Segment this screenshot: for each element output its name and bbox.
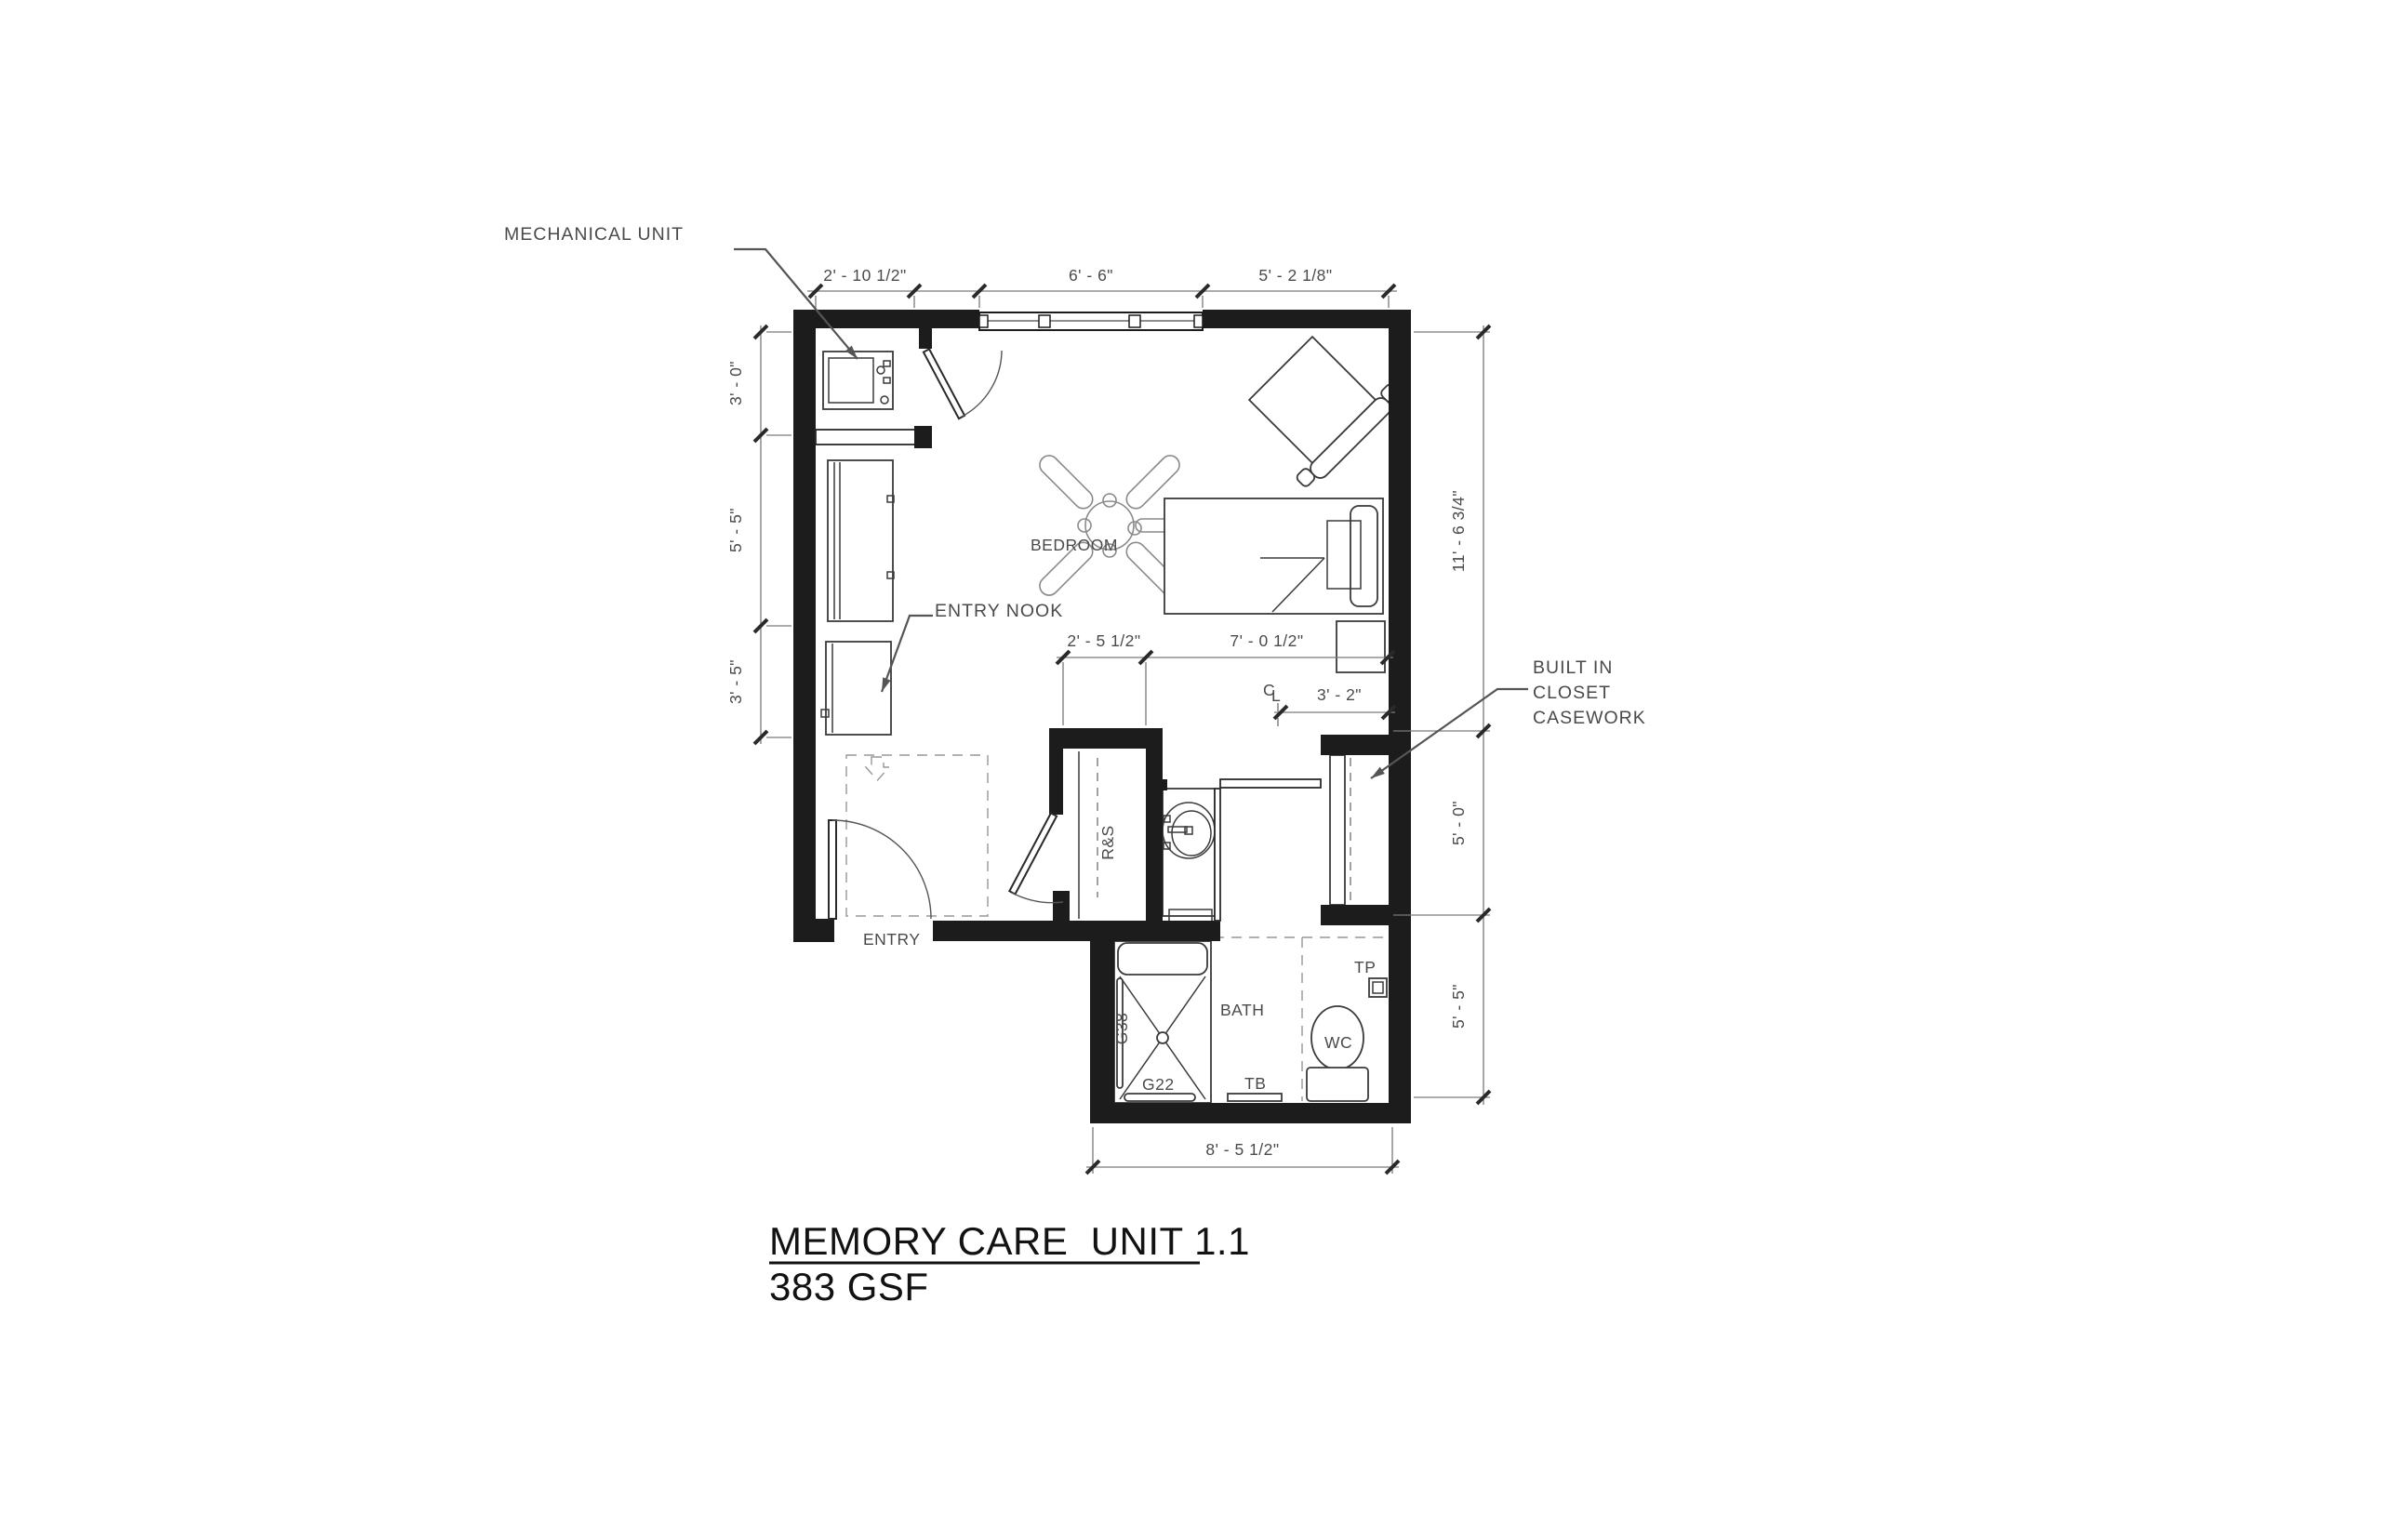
sheet-subtitle: 383 GSF: [769, 1265, 929, 1308]
built-in-closet-label-2: CLOSET: [1533, 683, 1611, 703]
mechanical-unit-box: [823, 352, 893, 409]
dim-bottom: 8' - 5 1/2": [1086, 1127, 1399, 1174]
built-in-closet-casework: [1220, 755, 1350, 905]
wall-vanity-right: [1215, 789, 1220, 921]
down-arrow-icon: [866, 757, 889, 780]
rod-shelf-label: R&S: [1098, 825, 1117, 859]
bedroom-label: BEDROOM: [1031, 536, 1118, 554]
wall-right: [1389, 310, 1411, 1123]
dim-closet-width: 2' - 5 1/2": [1067, 631, 1140, 650]
window-mullion: [1129, 315, 1140, 327]
closet-stub-top: [1321, 735, 1389, 755]
dim-top-window: 6' - 6": [1069, 266, 1113, 285]
leader-arrowhead: [1371, 767, 1385, 778]
grab-bar-g22: [1124, 1094, 1195, 1101]
lounge-chair: [1233, 321, 1404, 492]
sheet-title: MEMORY CARE UNIT 1.1: [769, 1219, 1250, 1263]
dim-left-lower: 3' - 5": [726, 659, 745, 704]
tp-label: TP: [1354, 958, 1376, 976]
dim-top: 2' - 10 1/2" 6' - 6" 5' - 2 1/8": [807, 266, 1397, 308]
dim-closet-zone: 7' - 0 1/2": [1230, 631, 1303, 650]
corridor-header: [1220, 779, 1321, 788]
wall-entry-south: [933, 921, 1220, 941]
hall-door-jamb: [1053, 891, 1070, 923]
centerline-symbol-l: L: [1271, 686, 1281, 705]
entry-nook-cabinet: [821, 642, 891, 735]
hall-door: [1009, 813, 1063, 902]
tb-label: TB: [1244, 1074, 1266, 1093]
wall-bath-left: [1090, 921, 1114, 1123]
wc-label: WC: [1324, 1033, 1352, 1052]
bath-label: BATH: [1220, 1001, 1264, 1019]
wall-hall-door-hinge: [1049, 749, 1063, 815]
dim-centerline: C L 3' - 2": [1263, 681, 1395, 733]
floor-plan-sheet: 2' - 10 1/2" 6' - 6" 5' - 2 1/8" 3' - 0"…: [0, 0, 2381, 1540]
built-in-closet-label-3: CASEWORK: [1533, 708, 1646, 728]
window: [979, 312, 1203, 330]
mechanical-unit-label: MECHANICAL UNIT: [504, 224, 684, 245]
annotation-built-in-closet: BUILT IN CLOSET CASEWORK: [1371, 657, 1646, 778]
dim-left-upper: 3' - 0": [726, 361, 745, 405]
window-mullion: [1039, 315, 1050, 327]
wardrobe-casework: [828, 460, 894, 621]
toilet: [1307, 1006, 1368, 1101]
annotation-entry-nook: ENTRY NOOK: [882, 601, 1063, 692]
rod-and-shelf-closet: [1079, 751, 1097, 919]
entry-nook-label: ENTRY NOOK: [935, 601, 1063, 621]
dim-right-closet: 5' - 0": [1449, 801, 1468, 845]
toilet-paper-holder: [1369, 978, 1387, 997]
nightstand: [1337, 621, 1385, 672]
wall-closet-top: [1049, 728, 1163, 749]
wall-rs-right: [1146, 749, 1163, 921]
towel-bar: [1228, 1094, 1282, 1101]
wall-bath-bottom: [1090, 1103, 1411, 1123]
mech-partition-jamb: [914, 426, 932, 448]
vanity-jamb: [1158, 779, 1167, 790]
dim-bottom-bath: 8' - 5 1/2": [1205, 1140, 1279, 1159]
closet-stub-bottom: [1321, 905, 1389, 925]
floor-plan-drawing: 2' - 10 1/2" 6' - 6" 5' - 2 1/8" 3' - 0"…: [0, 0, 2381, 1540]
built-in-closet-label-1: BUILT IN: [1533, 657, 1613, 678]
entry-label: ENTRY: [863, 930, 921, 949]
dim-right-bath: 5' - 5": [1449, 984, 1468, 1029]
dim-top-mech: 2' - 10 1/2": [823, 266, 907, 285]
g22-label: G22: [1142, 1075, 1175, 1094]
g38-label: G38: [1112, 1013, 1131, 1045]
vanity-sink: [1163, 789, 1215, 923]
dim-left: 3' - 0" 5' - 5" 3' - 5": [726, 325, 791, 744]
dim-top-right: 5' - 2 1/8": [1258, 266, 1332, 285]
title-block: MEMORY CARE UNIT 1.1 383 GSF: [769, 1219, 1250, 1308]
entry-door: [829, 820, 931, 919]
dim-cl-offset: 3' - 2": [1317, 685, 1362, 704]
entry-door-jamb: [814, 919, 834, 942]
dim-right-bedroom: 11' - 6 3/4": [1449, 490, 1468, 572]
mech-door-jamb: [919, 328, 932, 349]
wall-top-right: [1203, 310, 1411, 328]
wall-mech-partition: [816, 430, 916, 445]
wall-top-left: [793, 310, 979, 328]
entry-clearance-area: [846, 755, 988, 916]
bed: [1164, 498, 1383, 614]
mech-closet-door: [924, 349, 1002, 418]
wall-left: [793, 310, 816, 942]
dim-left-middle: 5' - 5": [726, 508, 745, 552]
